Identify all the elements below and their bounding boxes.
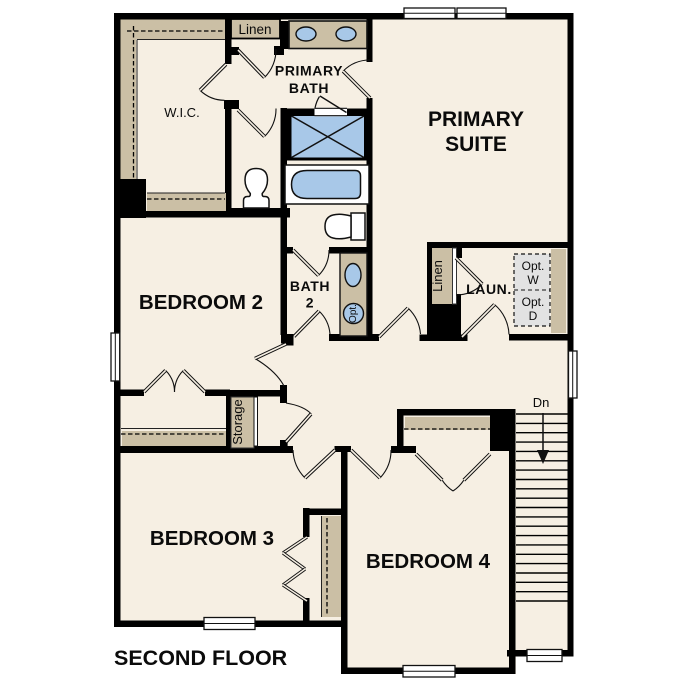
- svg-text:Opt.: Opt.: [522, 259, 545, 273]
- svg-text:Opt.: Opt.: [522, 295, 545, 309]
- svg-text:W.I.C.: W.I.C.: [164, 105, 199, 120]
- svg-text:BEDROOM 2: BEDROOM 2: [139, 291, 263, 314]
- svg-text:D: D: [529, 309, 538, 323]
- svg-text:PRIMARY: PRIMARY: [275, 63, 343, 79]
- svg-text:BATH: BATH: [289, 80, 329, 96]
- svg-text:Linen: Linen: [238, 22, 271, 37]
- svg-text:W: W: [527, 273, 539, 287]
- svg-text:2: 2: [306, 295, 314, 311]
- svg-text:BEDROOM 4: BEDROOM 4: [366, 550, 491, 573]
- svg-text:Opt.: Opt.: [348, 304, 359, 323]
- svg-text:BATH: BATH: [290, 278, 330, 294]
- svg-text:PRIMARY: PRIMARY: [428, 108, 524, 131]
- svg-text:Dn: Dn: [533, 395, 550, 410]
- svg-text:SECOND FLOOR: SECOND FLOOR: [114, 646, 288, 670]
- svg-text:SUITE: SUITE: [445, 133, 507, 156]
- svg-text:Storage: Storage: [230, 399, 245, 445]
- svg-text:Linen: Linen: [430, 260, 445, 292]
- svg-text:LAUN.: LAUN.: [466, 281, 512, 297]
- svg-text:BEDROOM 3: BEDROOM 3: [150, 527, 274, 550]
